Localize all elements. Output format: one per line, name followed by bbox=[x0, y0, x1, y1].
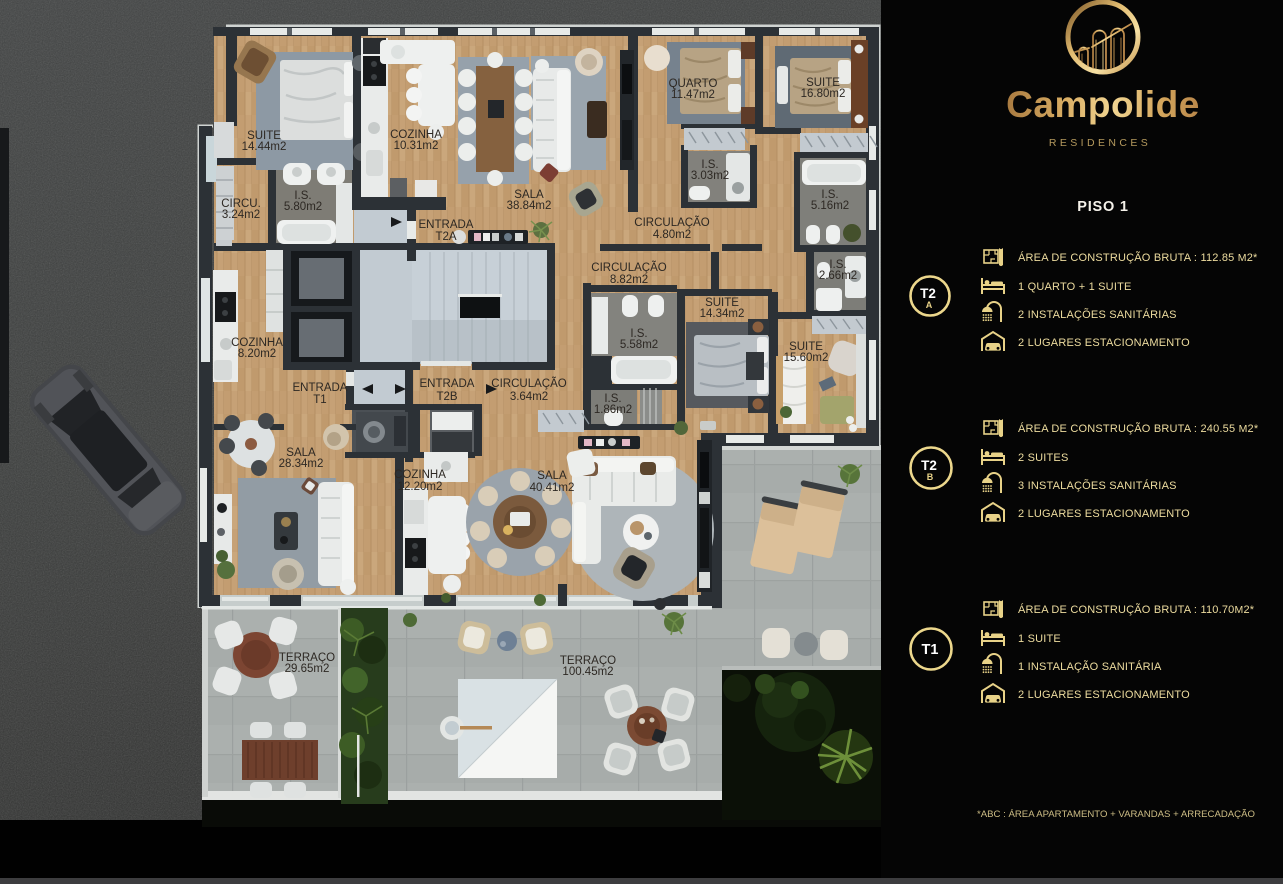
svg-text:ÁREA DE CONSTRUÇÃO BRUTA : 11: ÁREA DE CONSTRUÇÃO BRUTA : 112.85 M2* bbox=[1018, 251, 1258, 264]
svg-text:14.34m2: 14.34m2 bbox=[700, 308, 745, 320]
svg-text:T2A: T2A bbox=[435, 231, 456, 243]
svg-text:Campolide: Campolide bbox=[1006, 84, 1200, 125]
svg-text:ENTRADA: ENTRADA bbox=[420, 378, 475, 390]
svg-text:3.64m2: 3.64m2 bbox=[510, 391, 548, 403]
svg-text:1.86m2: 1.86m2 bbox=[594, 404, 632, 416]
svg-text:38.84m2: 38.84m2 bbox=[507, 200, 552, 212]
svg-text:3 INSTALAÇÕES SANITÁRIAS: 3 INSTALAÇÕES SANITÁRIAS bbox=[1018, 479, 1177, 492]
svg-text:T2: T2 bbox=[920, 286, 936, 301]
svg-text:1 SUITE: 1 SUITE bbox=[1018, 633, 1061, 645]
svg-text:A: A bbox=[926, 300, 933, 310]
svg-text:2 LUGARES ESTACIONAMENTO: 2 LUGARES ESTACIONAMENTO bbox=[1018, 689, 1190, 701]
svg-text:12.20m2: 12.20m2 bbox=[398, 481, 443, 493]
svg-text:5.58m2: 5.58m2 bbox=[620, 339, 658, 351]
svg-text:100.45m2: 100.45m2 bbox=[562, 666, 613, 678]
svg-text:5.80m2: 5.80m2 bbox=[284, 201, 322, 213]
svg-text:T2: T2 bbox=[921, 458, 937, 473]
svg-text:10.31m2: 10.31m2 bbox=[394, 140, 439, 152]
svg-text:CIRCULAÇÃO: CIRCULAÇÃO bbox=[634, 216, 709, 229]
svg-text:29.65m2: 29.65m2 bbox=[285, 663, 330, 675]
svg-text:ENTRADA: ENTRADA bbox=[293, 382, 348, 394]
svg-text:4.80m2: 4.80m2 bbox=[653, 229, 691, 241]
svg-text:RESIDENCES: RESIDENCES bbox=[1049, 137, 1151, 149]
svg-text:T2B: T2B bbox=[436, 391, 457, 403]
svg-text:COZINHA: COZINHA bbox=[394, 469, 446, 481]
svg-text:8.20m2: 8.20m2 bbox=[238, 348, 276, 360]
svg-text:1 QUARTO + 1 SUITE: 1 QUARTO + 1 SUITE bbox=[1018, 281, 1132, 293]
svg-text:3.03m2: 3.03m2 bbox=[691, 170, 729, 182]
svg-text:SALA: SALA bbox=[537, 470, 567, 482]
svg-text:ÁREA DE CONSTRUÇÃO BRUTA : 24: ÁREA DE CONSTRUÇÃO BRUTA : 240.55 M2* bbox=[1018, 422, 1259, 435]
svg-text:15.60m2: 15.60m2 bbox=[784, 352, 829, 364]
svg-text:2 SUITES: 2 SUITES bbox=[1018, 452, 1069, 464]
svg-text:16.80m2: 16.80m2 bbox=[801, 88, 846, 100]
svg-text:2.66m2: 2.66m2 bbox=[819, 270, 857, 282]
svg-text:2 LUGARES ESTACIONAMENTO: 2 LUGARES ESTACIONAMENTO bbox=[1018, 337, 1190, 349]
svg-text:14.44m2: 14.44m2 bbox=[242, 141, 287, 153]
svg-text:11.47m2: 11.47m2 bbox=[671, 89, 715, 101]
svg-text:40.41m2: 40.41m2 bbox=[530, 482, 575, 494]
svg-text:5.16m2: 5.16m2 bbox=[811, 200, 849, 212]
svg-text:8.82m2: 8.82m2 bbox=[610, 274, 648, 286]
svg-text:28.34m2: 28.34m2 bbox=[279, 458, 324, 470]
svg-text:T1: T1 bbox=[922, 642, 939, 658]
svg-text:2 INSTALAÇÕES SANITÁRIAS: 2 INSTALAÇÕES SANITÁRIAS bbox=[1018, 308, 1177, 321]
svg-text:B: B bbox=[927, 472, 934, 482]
svg-text:T1: T1 bbox=[313, 394, 326, 406]
svg-text:3.24m2: 3.24m2 bbox=[222, 209, 260, 221]
svg-text:*ABC : ÁREA APARTAMENTO + VAR: *ABC : ÁREA APARTAMENTO + VARANDAS + ARR… bbox=[977, 809, 1255, 820]
svg-text:CIRCULAÇÃO: CIRCULAÇÃO bbox=[591, 261, 666, 274]
svg-text:ÁREA DE CONSTRUÇÃO BRUTA : 11: ÁREA DE CONSTRUÇÃO BRUTA : 110.70M2* bbox=[1018, 603, 1255, 616]
svg-text:CIRCULAÇÃO: CIRCULAÇÃO bbox=[491, 377, 566, 390]
svg-text:2 LUGARES ESTACIONAMENTO: 2 LUGARES ESTACIONAMENTO bbox=[1018, 508, 1190, 520]
svg-text:PISO 1: PISO 1 bbox=[1077, 199, 1129, 215]
svg-text:1 INSTALAÇÃO SANITÁRIA: 1 INSTALAÇÃO SANITÁRIA bbox=[1018, 660, 1162, 673]
svg-text:ENTRADA: ENTRADA bbox=[419, 219, 474, 231]
